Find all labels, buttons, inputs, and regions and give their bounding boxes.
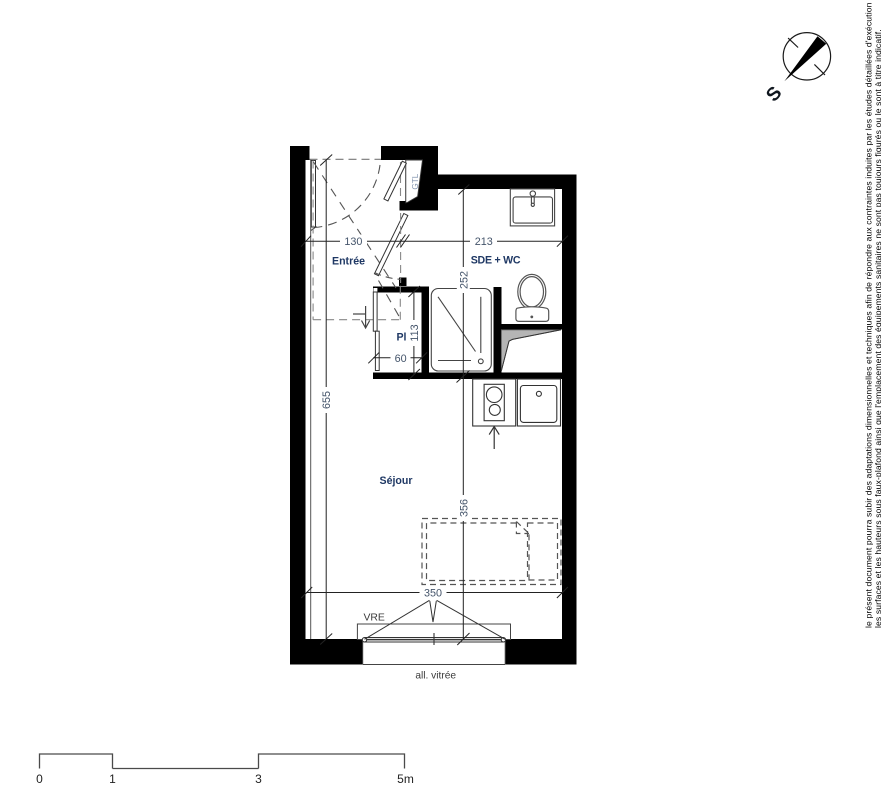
svg-text:350: 350 (424, 588, 442, 600)
svg-text:1: 1 (109, 772, 116, 786)
svg-text:213: 213 (475, 236, 493, 248)
svg-text:60: 60 (395, 353, 407, 365)
svg-text:5m: 5m (397, 772, 414, 786)
svg-text:VRE: VRE (364, 612, 385, 623)
svg-text:655: 655 (321, 391, 333, 409)
svg-text:all. vitrée: all. vitrée (415, 671, 456, 682)
svg-text:Pl: Pl (396, 331, 406, 343)
svg-text:113: 113 (409, 324, 421, 341)
svg-text:252: 252 (458, 271, 470, 289)
svg-text:GTL: GTL (411, 173, 420, 189)
svg-text:le présent document pourra sub: le présent document pourra subir des ada… (864, 2, 874, 628)
svg-text:3: 3 (255, 772, 262, 786)
svg-text:130: 130 (344, 236, 362, 248)
svg-text:SDE + WC: SDE + WC (471, 255, 521, 267)
svg-text:0: 0 (36, 772, 43, 786)
svg-text:les surfaces et les hauteurs s: les surfaces et les hauteurs sous faux-p… (873, 29, 881, 628)
svg-text:356: 356 (458, 499, 470, 517)
svg-text:Séjour: Séjour (380, 475, 413, 487)
svg-text:Entrée: Entrée (332, 256, 365, 268)
